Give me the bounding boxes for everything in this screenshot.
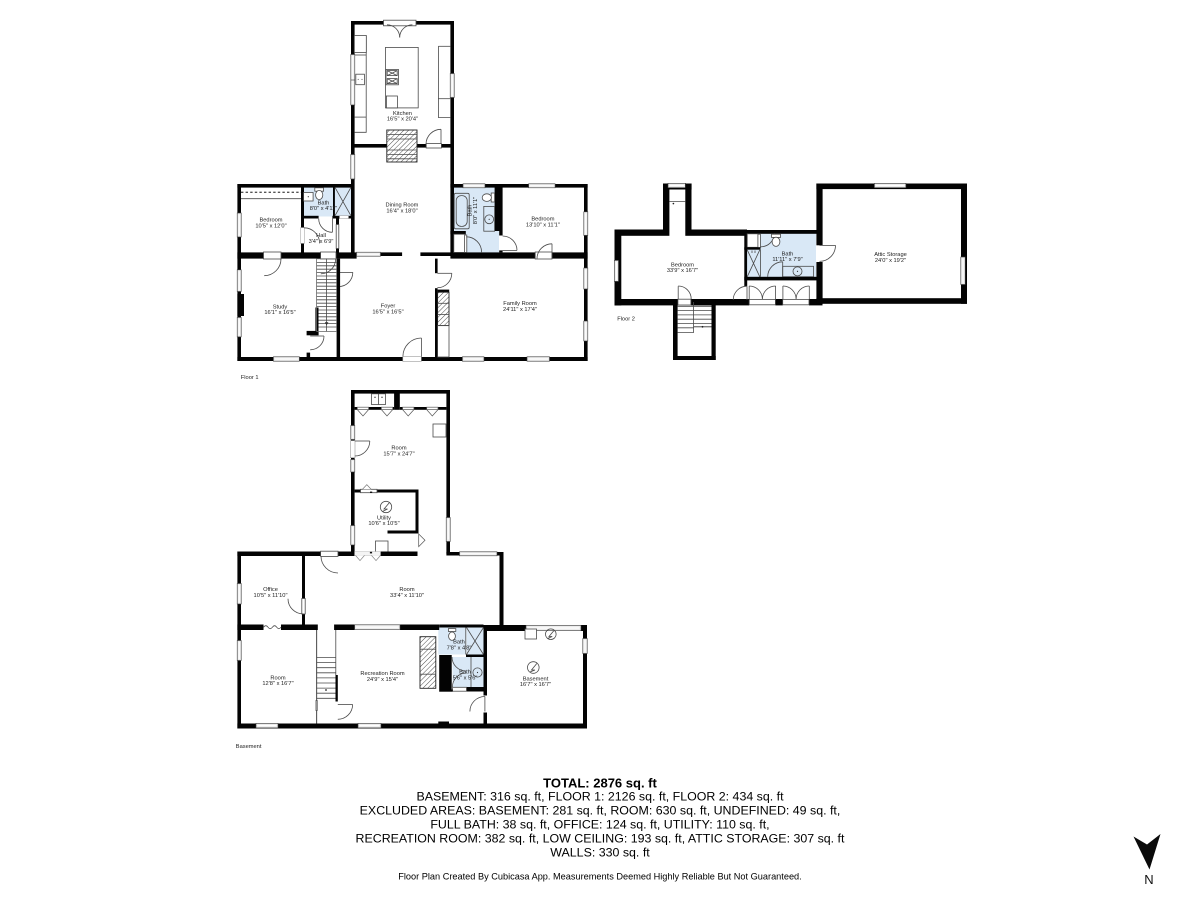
svg-text:Attic Storage24'0" x 19'2": Attic Storage24'0" x 19'2": [874, 252, 907, 264]
svg-text:BASEMENT: 316 sq. ft, FLOOR 1:: BASEMENT: 316 sq. ft, FLOOR 1: 2126 sq. …: [416, 790, 784, 804]
svg-text:Bedroom10'5" x 12'0": Bedroom10'5" x 12'0": [255, 218, 286, 230]
svg-text:TOTAL: 2876 sq. ft: TOTAL: 2876 sq. ft: [543, 776, 657, 791]
svg-text:Basement16'7" x 16'7": Basement16'7" x 16'7": [520, 676, 551, 688]
svg-text:Basement: Basement: [236, 744, 262, 750]
svg-text:Floor Plan Created By Cubicasa: Floor Plan Created By Cubicasa App. Meas…: [398, 872, 801, 882]
svg-text:Bedroom33'9" x 16'7": Bedroom33'9" x 16'7": [667, 262, 698, 274]
svg-text:Floor 2: Floor 2: [617, 316, 635, 322]
svg-text:RECREATION ROOM: 382 sq. ft, L: RECREATION ROOM: 382 sq. ft, LOW CEILING…: [356, 832, 845, 846]
svg-text:Family Room24'11" x 17'4": Family Room24'11" x 17'4": [503, 301, 537, 313]
svg-text:Dining Room16'4" x 18'0": Dining Room16'4" x 18'0": [386, 202, 419, 214]
svg-text:FULL BATH: 38 sq. ft, OFFICE:: FULL BATH: 38 sq. ft, OFFICE: 124 sq. ft…: [430, 818, 769, 832]
svg-text:WALLS: 330 sq. ft: WALLS: 330 sq. ft: [550, 846, 650, 860]
svg-text:N: N: [1144, 872, 1153, 887]
svg-text:EXCLUDED AREAS: BASEMENT: 281: EXCLUDED AREAS: BASEMENT: 281 sq. ft, RO…: [360, 804, 841, 818]
svg-text:Floor 1: Floor 1: [241, 375, 259, 381]
